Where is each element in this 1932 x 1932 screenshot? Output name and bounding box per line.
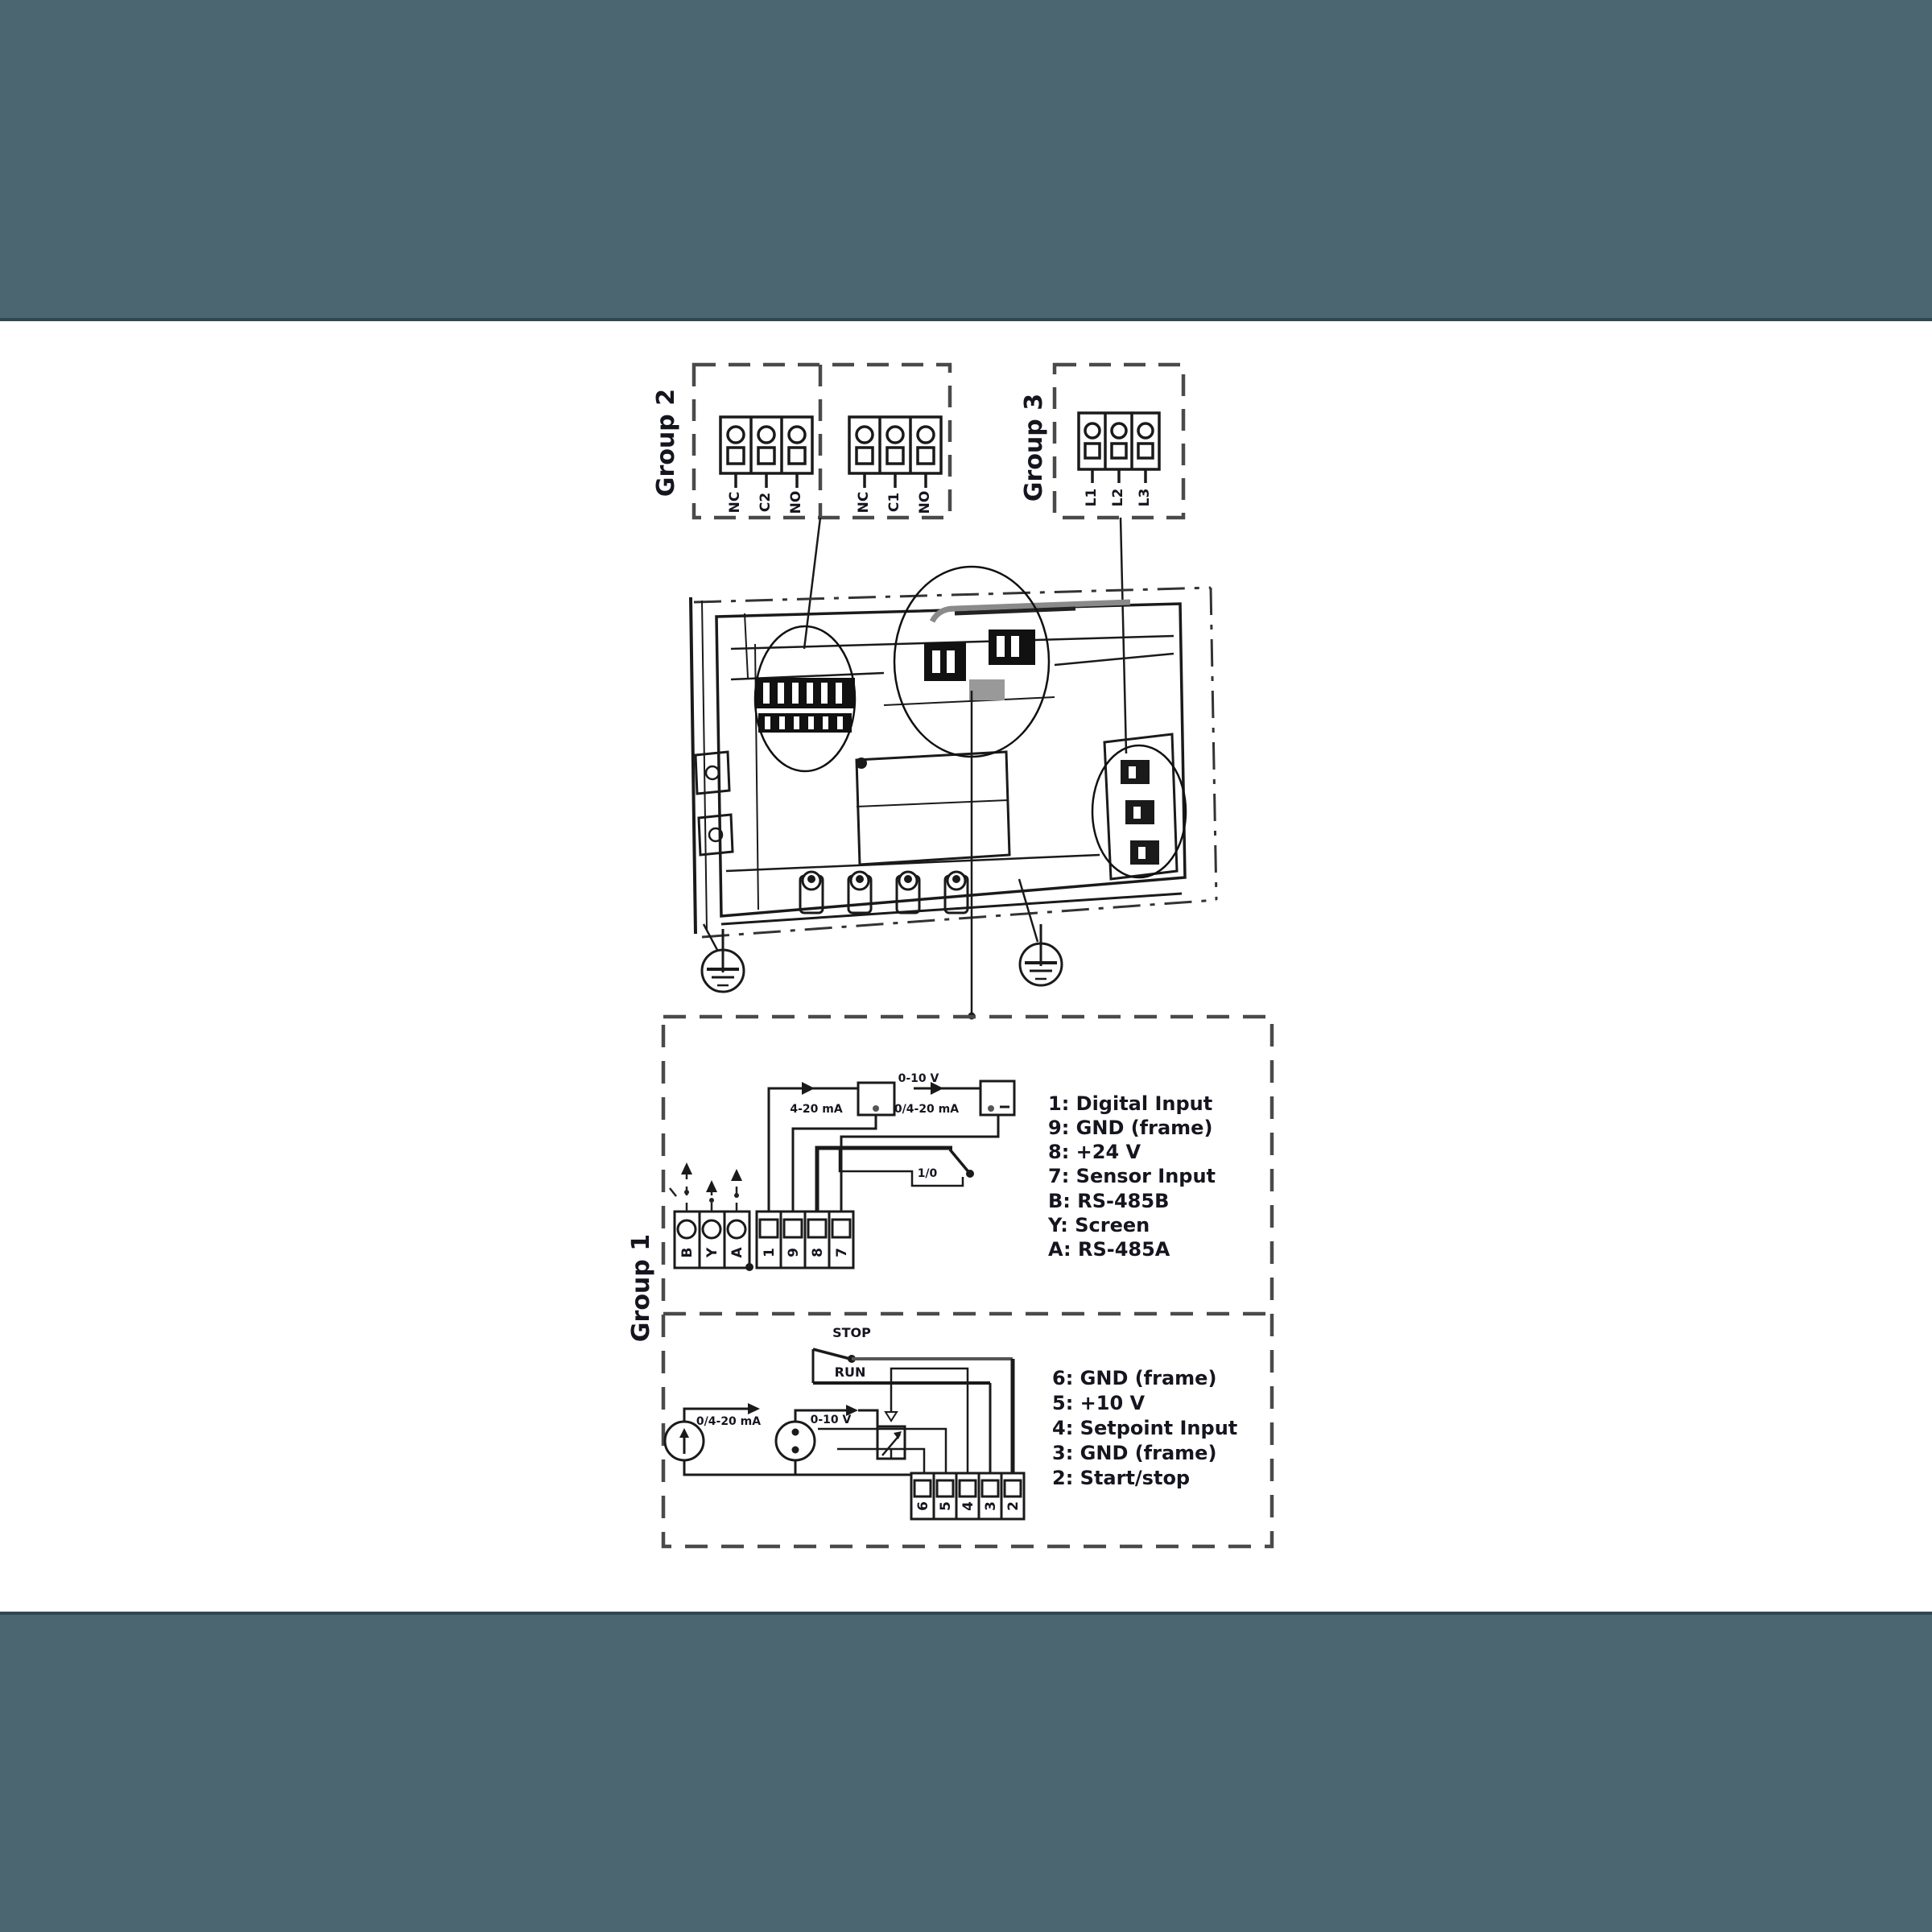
sensor-box-a bbox=[858, 1083, 894, 1115]
current-alt-signal-label: 0/4-20 mA bbox=[894, 1103, 959, 1116]
shielded-cable-wires bbox=[670, 1162, 742, 1212]
comm-terminal-block bbox=[675, 1212, 753, 1271]
lower-current-label: 0/4-20 mA bbox=[696, 1415, 761, 1428]
legend-line: Y: Screen bbox=[1047, 1214, 1150, 1236]
group2-section: Group 2 NC C2 NO bbox=[652, 365, 950, 649]
bottom-band-edge bbox=[0, 1612, 1932, 1615]
lower-legend: 6: GND (frame) 5: +10 V 4: Setpoint Inpu… bbox=[1052, 1367, 1237, 1489]
legend-line: 5: +10 V bbox=[1052, 1392, 1146, 1414]
legend-line: 9: GND (frame) bbox=[1048, 1117, 1212, 1139]
current-signal-label: 4-20 mA bbox=[790, 1103, 842, 1116]
run-label: RUN bbox=[835, 1364, 866, 1380]
setpoint-terminal-label: 5 bbox=[938, 1501, 954, 1511]
relay-block-b bbox=[849, 417, 941, 488]
legend-line: A: RS-485A bbox=[1048, 1238, 1170, 1261]
io-terminal-label: 7 bbox=[834, 1248, 850, 1257]
legend-line: 7: Sensor Input bbox=[1048, 1165, 1216, 1187]
comm-terminal-label: A bbox=[729, 1247, 745, 1258]
group1-label: Group 1 bbox=[627, 1234, 655, 1342]
stop-label: STOP bbox=[832, 1325, 871, 1340]
power-terminal-label: L1 bbox=[1084, 489, 1100, 507]
top-band bbox=[0, 0, 1932, 318]
terminal-box-drawing bbox=[691, 588, 1216, 937]
comm-terminal-label: Y bbox=[704, 1247, 720, 1258]
relay-b-terminal-label: C1 bbox=[886, 493, 902, 512]
setpoint-terminal-label: 3 bbox=[983, 1501, 999, 1511]
legend-line: 6: GND (frame) bbox=[1052, 1367, 1216, 1389]
relay-a-terminal-label: C2 bbox=[758, 493, 774, 512]
upper-legend: 1: Digital Input 9: GND (frame) 8: +24 V… bbox=[1047, 1092, 1216, 1261]
group3-label: Group 3 bbox=[1020, 394, 1048, 502]
io-terminal-block bbox=[757, 1212, 853, 1268]
legend-line: 2: Start/stop bbox=[1052, 1467, 1190, 1489]
top-band-edge bbox=[0, 318, 1932, 321]
lower-voltage-label: 0-10 V bbox=[811, 1414, 852, 1426]
power-terminal-label: L3 bbox=[1137, 489, 1153, 507]
relay-a-terminal-label: NO bbox=[788, 491, 804, 514]
group3-leader-line bbox=[1121, 518, 1126, 753]
voltage-signal-label: 0-10 V bbox=[898, 1072, 939, 1085]
group1-section: Group 1 0-10 V 4-20 mA 0/4-20 mA 1/0 bbox=[627, 1017, 1272, 1546]
power-terminal-block bbox=[1079, 413, 1159, 483]
legend-line: 8: +24 V bbox=[1048, 1141, 1141, 1163]
io-terminal-label: 8 bbox=[810, 1248, 826, 1257]
io-terminal-label: 1 bbox=[762, 1248, 778, 1257]
setpoint-terminal-label: 4 bbox=[960, 1501, 976, 1511]
relay-b-terminal-label: NO bbox=[917, 491, 933, 514]
legend-line: 3: GND (frame) bbox=[1052, 1442, 1216, 1464]
io-terminal-label: 9 bbox=[786, 1248, 802, 1257]
relay-b-terminal-label: NC bbox=[856, 492, 872, 514]
group2-label: Group 2 bbox=[652, 389, 680, 497]
setpoint-terminal-block bbox=[911, 1473, 1024, 1519]
legend-line: B: RS-485B bbox=[1048, 1190, 1169, 1212]
switch-1-0-label: 1/0 bbox=[918, 1167, 938, 1180]
legend-line: 1: Digital Input bbox=[1048, 1092, 1212, 1115]
earth-ground-icon bbox=[702, 924, 744, 992]
power-terminal-label: L2 bbox=[1110, 489, 1126, 507]
relay-block-a bbox=[720, 417, 812, 488]
relay-a-terminal-label: NC bbox=[727, 492, 743, 514]
earth-ground-icon bbox=[1019, 879, 1062, 985]
comm-terminal-label: B bbox=[679, 1248, 696, 1258]
bottom-band bbox=[0, 1615, 1932, 1932]
legend-line: 4: Setpoint Input bbox=[1052, 1417, 1237, 1439]
page: Group 2 NC C2 NO bbox=[0, 0, 1932, 1932]
setpoint-terminal-label: 6 bbox=[915, 1501, 931, 1511]
setpoint-terminal-label: 2 bbox=[1005, 1501, 1022, 1511]
sensor-box-b bbox=[980, 1081, 1014, 1115]
